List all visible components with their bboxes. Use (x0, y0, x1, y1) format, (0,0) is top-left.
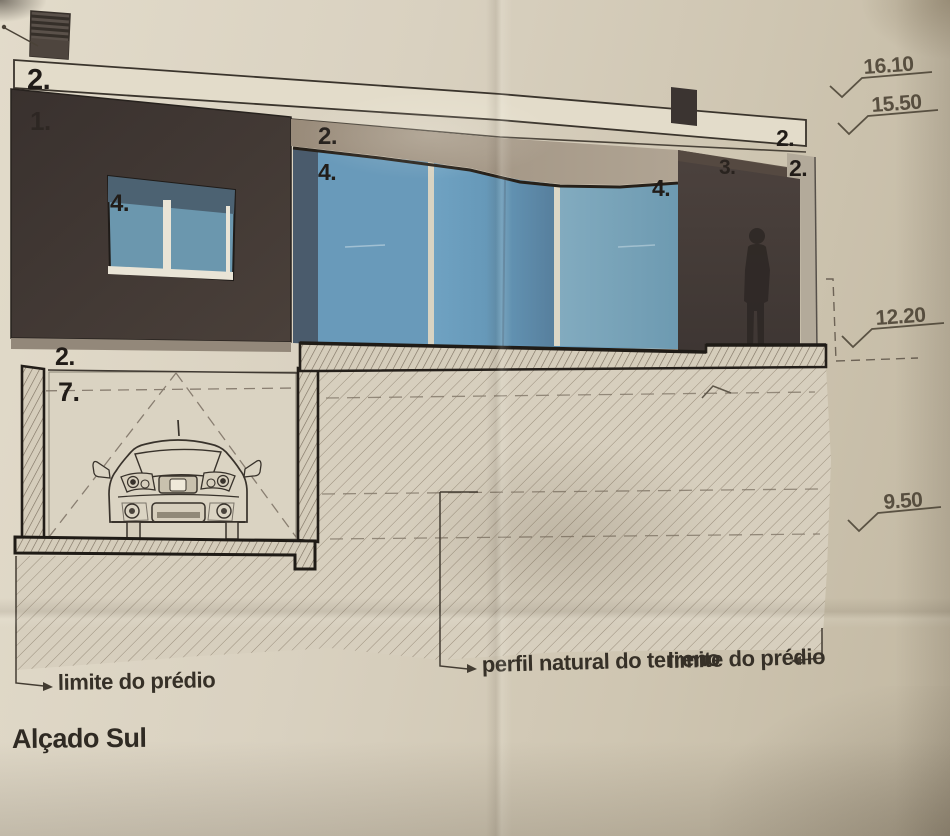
garage-wall-left (22, 366, 44, 551)
car-wheel-left (127, 522, 140, 539)
elevation-drawing: limite do prédio perfil natural do terre… (0, 0, 950, 836)
roof-element (671, 87, 697, 126)
car-wheel-right (226, 522, 238, 539)
garage-wall-right (298, 368, 318, 542)
elevation-marker-9-50: 9.50 (848, 488, 941, 531)
label-parapet-right: 2. (776, 125, 794, 151)
wall-right (678, 150, 800, 352)
label-garage-slab: 2. (55, 343, 75, 371)
car-badge (170, 479, 186, 491)
svg-text:15.50: 15.50 (871, 91, 923, 117)
svg-text:12.20: 12.20 (875, 304, 927, 330)
label-small-window: 4. (110, 190, 129, 217)
label-garage-room: 7. (58, 377, 80, 407)
glazing-mullion (428, 162, 434, 345)
label-glazing-right: 4. (652, 175, 670, 201)
chimney (30, 11, 70, 59)
svg-text:9.50: 9.50 (883, 488, 923, 514)
svg-text:16.10: 16.10 (863, 53, 915, 79)
elevation-marker-12-20: 12.20 (842, 304, 944, 347)
label-glazing-left: 4. (318, 159, 336, 185)
glazing-shadow-strip (293, 148, 318, 344)
label-band-mid: 2. (318, 123, 337, 150)
label-parapet: 2. (27, 64, 50, 96)
elevation-marker-15-50: 15.50 (838, 91, 938, 134)
label-boundary-right: limite do prédio (667, 644, 825, 673)
label-facade: 1. (30, 106, 51, 136)
label-wall-right: 3. (719, 156, 736, 179)
label-boundary-left: limite do prédio (58, 667, 216, 695)
glazing-mullion (554, 184, 560, 346)
page-title: Alçado Sul (12, 723, 147, 754)
scanned-elevation-photo: limite do prédio perfil natural do terre… (0, 0, 950, 836)
label-edge-band: 2. (789, 155, 807, 181)
terrain-profile-arrowhead (467, 664, 477, 673)
